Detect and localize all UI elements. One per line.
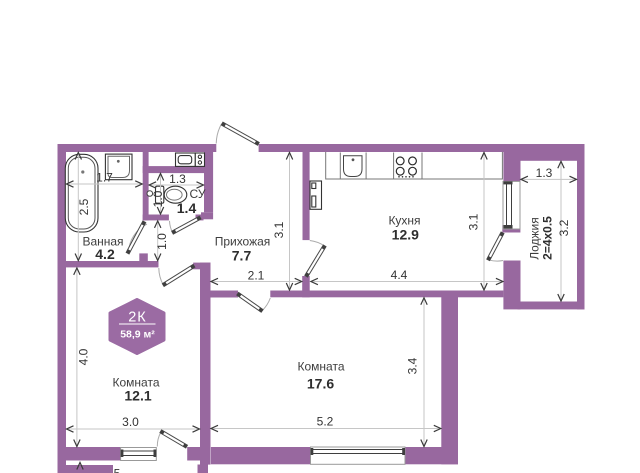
svg-text:1.7: 1.7 <box>96 171 113 185</box>
svg-text:2К: 2К <box>128 310 147 326</box>
svg-text:3.4: 3.4 <box>406 357 420 374</box>
svg-text:2.5: 2.5 <box>77 198 91 215</box>
svg-text:2=4х0.5: 2=4х0.5 <box>541 216 555 260</box>
svg-text:12.9: 12.9 <box>392 227 419 243</box>
svg-text:3.2: 3.2 <box>557 219 571 236</box>
svg-text:5.2: 5.2 <box>317 415 334 429</box>
svg-text:17.6: 17.6 <box>307 376 334 392</box>
svg-text:3.0: 3.0 <box>122 415 139 429</box>
svg-text:1.3: 1.3 <box>536 166 553 180</box>
svg-text:3.1: 3.1 <box>272 221 286 238</box>
svg-text:Комната: Комната <box>298 360 345 374</box>
svg-text:Прихожая: Прихожая <box>215 235 271 249</box>
svg-text:2.1: 2.1 <box>248 268 265 282</box>
svg-text:1.3: 1.3 <box>169 172 186 186</box>
svg-text:Лоджия: Лоджия <box>528 217 542 260</box>
svg-text:Кухня: Кухня <box>388 214 420 228</box>
svg-text:1.0: 1.0 <box>151 190 165 207</box>
svg-text:1.4: 1.4 <box>177 200 197 216</box>
svg-text:1.0: 1.0 <box>155 233 169 250</box>
svg-text:4.4: 4.4 <box>391 268 408 282</box>
svg-text:5: 5 <box>114 467 121 473</box>
svg-text:3.1: 3.1 <box>467 213 481 230</box>
svg-text:СУ: СУ <box>190 187 206 201</box>
svg-text:7.7: 7.7 <box>232 248 252 264</box>
svg-text:4.0: 4.0 <box>77 348 91 365</box>
svg-text:58,9 м²: 58,9 м² <box>120 328 155 340</box>
svg-text:4.2: 4.2 <box>95 246 115 262</box>
svg-text:12.1: 12.1 <box>124 388 151 404</box>
